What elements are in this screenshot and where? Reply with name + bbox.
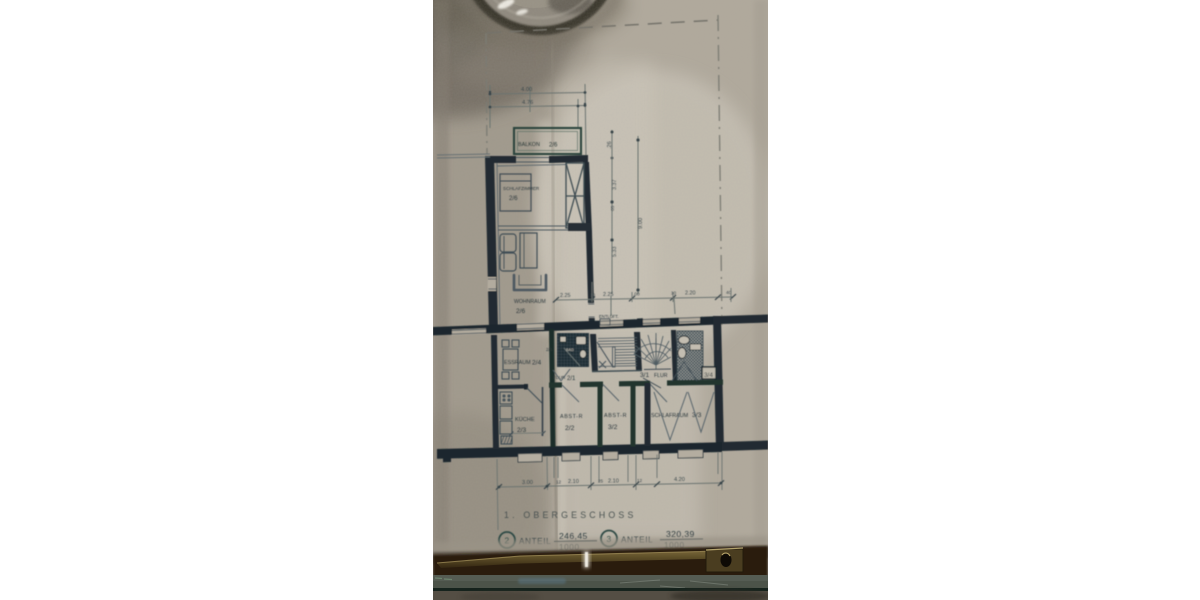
- svg-text:12: 12: [556, 479, 562, 484]
- svg-text:9.00: 9.00: [638, 218, 644, 229]
- svg-text:2.25: 2.25: [603, 292, 614, 298]
- svg-text:BAD: BAD: [566, 348, 574, 352]
- svg-text:WOHNRAUM: WOHNRAUM: [514, 299, 546, 305]
- svg-text:4.00: 4.00: [521, 87, 532, 93]
- svg-text:3/4: 3/4: [704, 372, 713, 379]
- svg-text:4.76: 4.76: [522, 100, 533, 106]
- svg-text:2/1: 2/1: [567, 376, 576, 382]
- svg-text:3/1: 3/1: [640, 372, 649, 379]
- svg-text:2/6: 2/6: [509, 195, 518, 202]
- svg-text:05: 05: [610, 205, 616, 211]
- svg-text:2.10: 2.10: [608, 478, 619, 484]
- svg-text:.00: .00: [633, 291, 640, 297]
- svg-text:FLUR: FLUR: [654, 373, 668, 379]
- svg-text:BALKON: BALKON: [518, 142, 540, 148]
- svg-text:SCHLAFZIMMER: SCHLAFZIMMER: [503, 186, 540, 191]
- svg-text:2/5: 2/5: [546, 347, 553, 352]
- svg-text:10: 10: [590, 292, 596, 297]
- svg-text:3.37: 3.37: [612, 180, 618, 191]
- svg-text:10: 10: [671, 291, 677, 296]
- svg-text:ABST-R: ABST-R: [604, 413, 627, 419]
- svg-text:3/2: 3/2: [608, 424, 618, 431]
- svg-text:3.00: 3.00: [522, 480, 533, 486]
- svg-text:KÜCHE: KÜCHE: [515, 416, 535, 423]
- svg-text:2.20: 2.20: [685, 290, 696, 296]
- svg-text:4.20: 4.20: [674, 477, 685, 483]
- svg-text:2/6: 2/6: [549, 143, 558, 149]
- svg-text:SCHLAFRAUM: SCHLAFRAUM: [651, 413, 689, 419]
- svg-text:2/6: 2/6: [516, 308, 525, 315]
- svg-text:ABST-R: ABST-R: [560, 414, 583, 420]
- svg-text:ENTLÜFT.: ENTLÜFT.: [599, 314, 619, 319]
- svg-text:ESSRAUM: ESSRAUM: [504, 360, 531, 366]
- svg-text:FLUR: FLUR: [553, 375, 566, 381]
- svg-text:5.33: 5.33: [612, 247, 618, 258]
- svg-text:2/4: 2/4: [532, 360, 541, 367]
- svg-text:12: 12: [637, 478, 643, 483]
- svg-text:2/2: 2/2: [565, 425, 575, 432]
- svg-text:2/3: 2/3: [517, 427, 526, 434]
- svg-text:2.10: 2.10: [568, 479, 579, 485]
- svg-text:25: 25: [598, 479, 604, 484]
- svg-text:2.25: 2.25: [560, 293, 571, 299]
- svg-text:1. OBERGESCHOSS: 1. OBERGESCHOSS: [504, 510, 637, 520]
